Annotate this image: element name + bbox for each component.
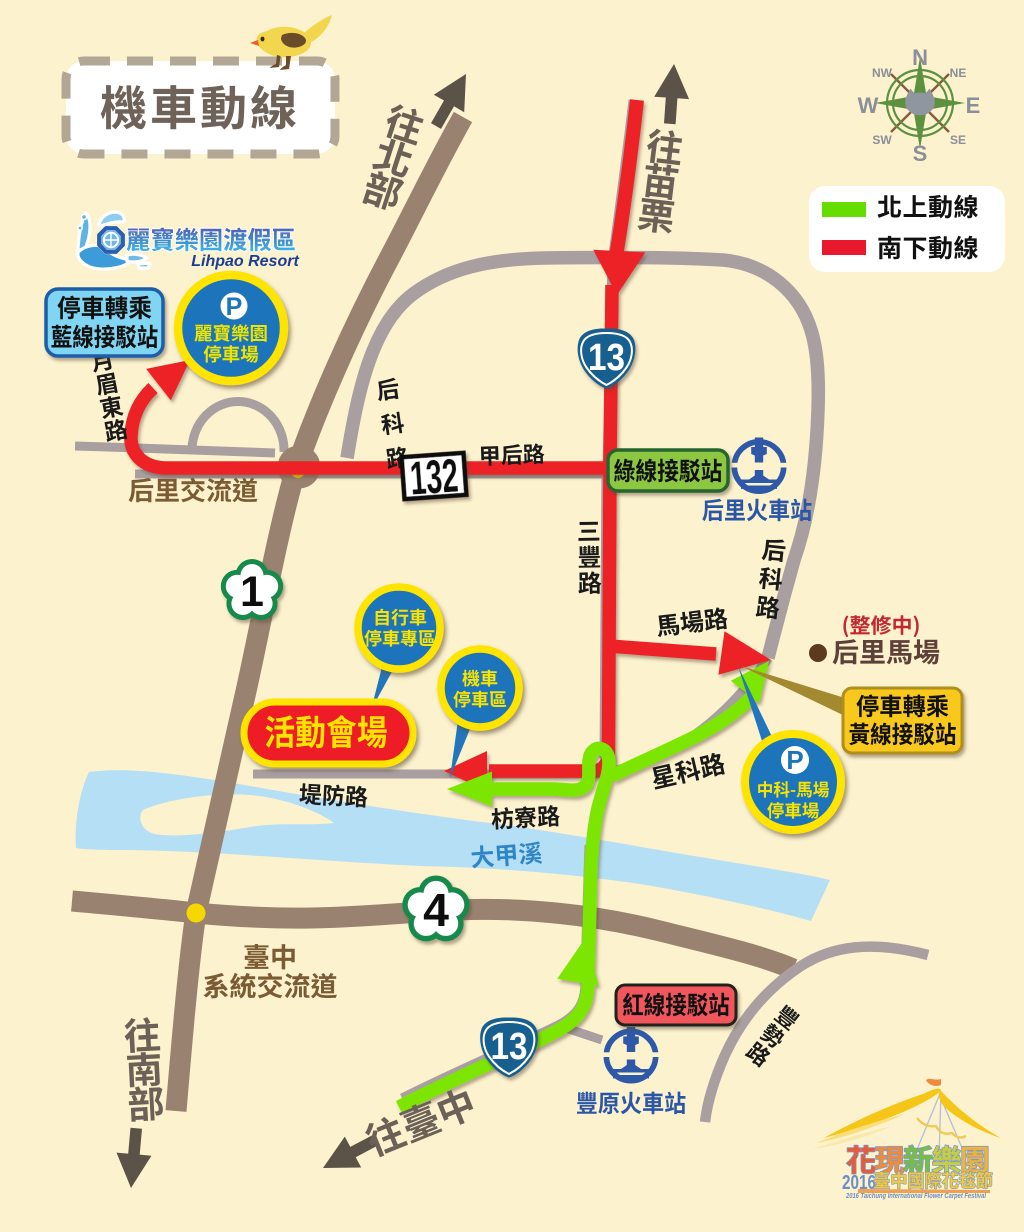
svg-text:P: P [226,293,243,321]
svg-text:NE: NE [950,66,967,80]
svg-text:S: S [913,141,928,166]
svg-text:4: 4 [423,884,449,936]
svg-text:1: 1 [240,568,264,616]
svg-text:E: E [966,93,981,118]
svg-text:N: N [912,45,928,70]
svg-text:SE: SE [950,133,966,147]
svg-text:NW: NW [872,66,893,80]
svg-text:132: 132 [408,448,460,504]
svg-text:W: W [858,93,879,118]
svg-text:P: P [786,745,803,775]
svg-text:SW: SW [872,133,892,147]
svg-text:Lihpao Resort: Lihpao Resort [191,253,299,270]
svg-text:13: 13 [491,1026,528,1068]
svg-text:2016 Taichung International Fl: 2016 Taichung International Flower Carpe… [845,1191,986,1200]
svg-text:13: 13 [588,337,625,379]
